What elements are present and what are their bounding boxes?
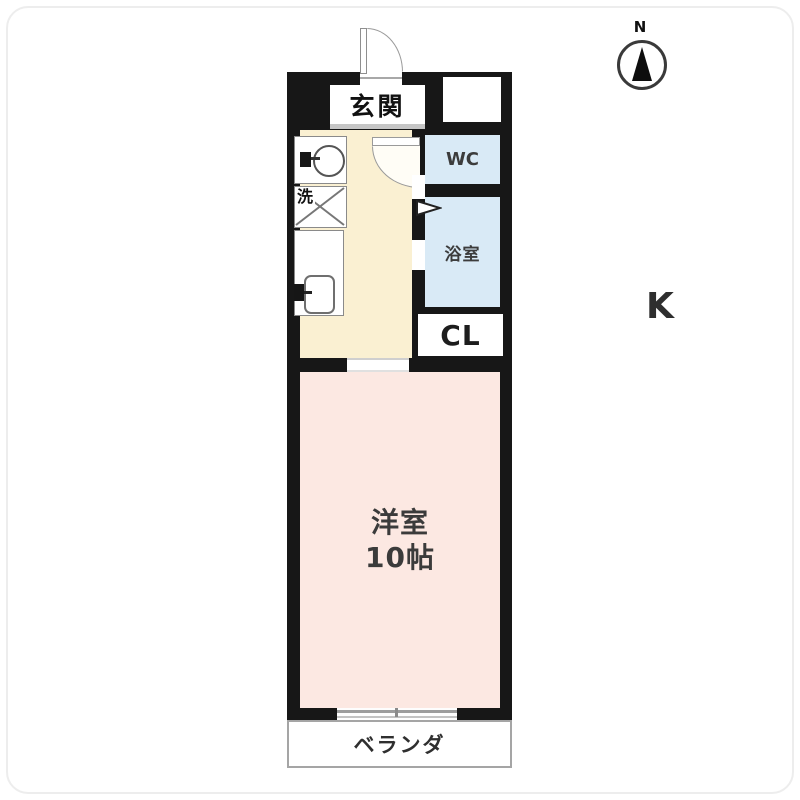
genkan-label: 玄関 (349, 87, 405, 123)
entrance-door-leaf-icon (360, 28, 367, 74)
living-room-size: 10帖 (365, 540, 435, 575)
faucet-spout-icon (311, 157, 320, 160)
kitchen-door-leaf-icon (372, 137, 420, 146)
bath-door-opening (412, 240, 425, 270)
wc-label: WC (446, 149, 479, 170)
veranda: ベランダ (287, 720, 512, 768)
faucet-spout-icon (304, 291, 312, 294)
living-label: 洋室 10帖 (365, 505, 435, 575)
compass: N (600, 18, 680, 98)
compass-north-label: N (600, 18, 680, 36)
genkan-step-edge (330, 124, 425, 129)
washbasin-fixture (294, 136, 347, 184)
kitchen-label: K (635, 286, 685, 327)
compass-circle (617, 40, 667, 90)
floor-plan: 玄関 WC 浴室 CL K (287, 72, 512, 720)
room-genkan: 玄関 (330, 85, 425, 125)
kitchen-counter-fixture (294, 230, 344, 316)
north-arrow-icon (632, 47, 652, 81)
counter-sink-icon (304, 275, 335, 314)
living-room-name: 洋室 (365, 505, 435, 540)
laundry-label: 洗 (295, 187, 315, 206)
wall-block (287, 72, 330, 136)
closet-label: CL (440, 319, 480, 352)
wc-door-opening (412, 175, 425, 199)
faucet-icon (294, 284, 304, 301)
kitchen-living-opening (347, 358, 409, 372)
entrance-sill (360, 77, 402, 79)
room-living: 洋室 10帖 (300, 372, 500, 708)
floorplan-canvas: N 玄関 WC 浴室 CL K (0, 0, 800, 800)
bath-label: 浴室 (445, 240, 481, 265)
faucet-icon (300, 152, 311, 167)
room-wc: WC (425, 135, 500, 184)
sink-basin-icon (313, 145, 345, 177)
laundry-pan-fixture: 洗 (294, 186, 347, 228)
veranda-label: ベランダ (354, 729, 446, 759)
folding-door-icon (416, 199, 442, 217)
sliding-window-icon (337, 708, 457, 720)
entrance-storage (443, 77, 501, 122)
room-closet: CL (418, 314, 503, 356)
window-center-tick (395, 708, 398, 717)
